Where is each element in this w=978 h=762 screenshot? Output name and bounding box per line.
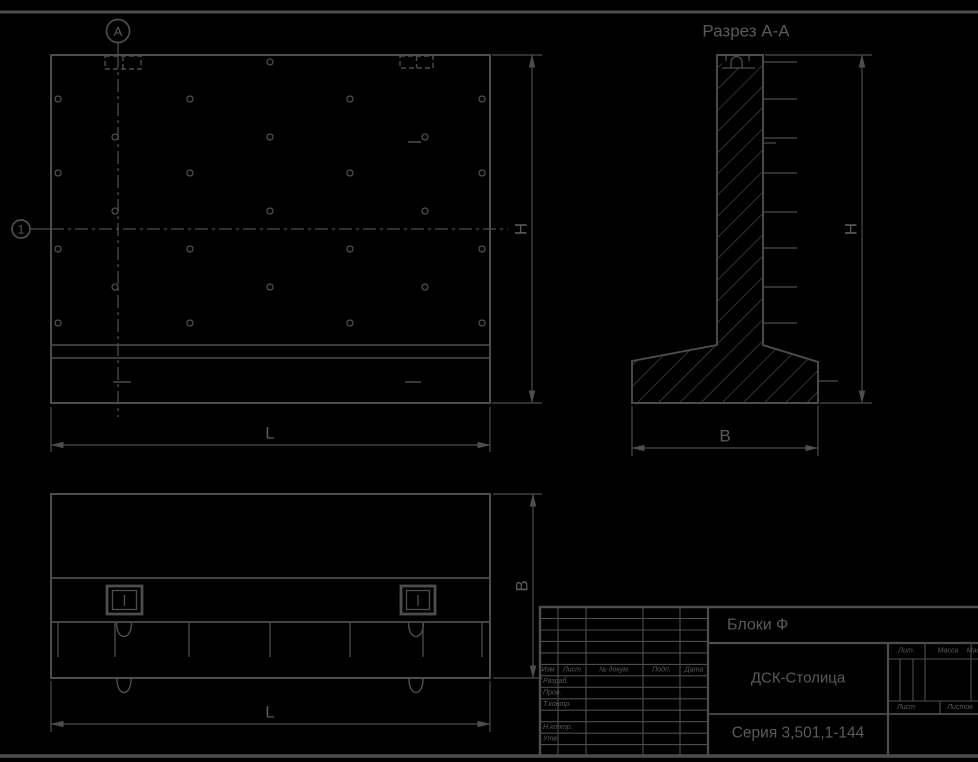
svg-text:Подп.: Подп. (652, 666, 671, 674)
svg-text:Масса: Масса (938, 648, 959, 655)
title-block-header-labels: Изм. Лист № докум. Подп. Дата (542, 666, 704, 674)
axis-1 (12, 220, 508, 238)
svg-text:Лист: Лист (562, 667, 581, 674)
plan-ticks (58, 623, 482, 657)
plan-loop-box-right (401, 586, 435, 614)
section-notch-mask (722, 56, 755, 68)
front-dimensions (51, 55, 542, 452)
svg-text:Лит.: Лит. (897, 648, 914, 655)
plan-view (51, 494, 542, 732)
plan-dim-b-label: B (513, 580, 532, 591)
svg-text:Листов: Листов (946, 704, 973, 711)
section-profile (632, 55, 818, 403)
svg-text:Разраб.: Разраб. (543, 677, 568, 685)
svg-text:№ докум.: № докум. (599, 666, 630, 674)
detail-dashes (113, 142, 421, 382)
technical-drawing: L H А 1 (0, 0, 978, 762)
drawing-sheet: L H А 1 (0, 0, 978, 762)
hole-markers (55, 59, 485, 326)
svg-text:Дата: Дата (684, 667, 704, 674)
svg-text:Пров.: Пров. (543, 690, 562, 697)
front-dim-h-label: H (512, 223, 531, 235)
title-series: Серия 3,501,1-144 (732, 725, 865, 742)
svg-text:Изм.: Изм. (542, 667, 557, 674)
svg-text:Лист: Лист (896, 704, 915, 711)
svg-text:Н.контр.: Н.контр. (543, 724, 573, 731)
title-organization: ДСК-Столица (751, 670, 846, 687)
section-dim-h-label: H (842, 223, 861, 235)
title-doc-name: Блоки Ф (727, 617, 788, 634)
front-view (12, 20, 542, 453)
axis-marker-1-label: 1 (18, 223, 25, 237)
svg-text:Т.контр.: Т.контр. (543, 701, 571, 708)
section-dim-b-label: B (719, 427, 730, 446)
svg-text:Утв.: Утв. (542, 736, 559, 743)
section-ticks (762, 62, 838, 381)
section-view (632, 55, 872, 456)
loop-recess-left (105, 56, 141, 69)
plan-dim-l-label: L (265, 703, 274, 722)
loop-recess-right (400, 56, 433, 68)
front-dim-l-label: L (265, 424, 274, 443)
axis-marker-a-label: А (114, 24, 123, 39)
plan-loop-box-left (107, 586, 142, 614)
section-title: Разрез А-А (702, 22, 790, 41)
svg-text:Масштаб: Масштаб (967, 647, 978, 655)
